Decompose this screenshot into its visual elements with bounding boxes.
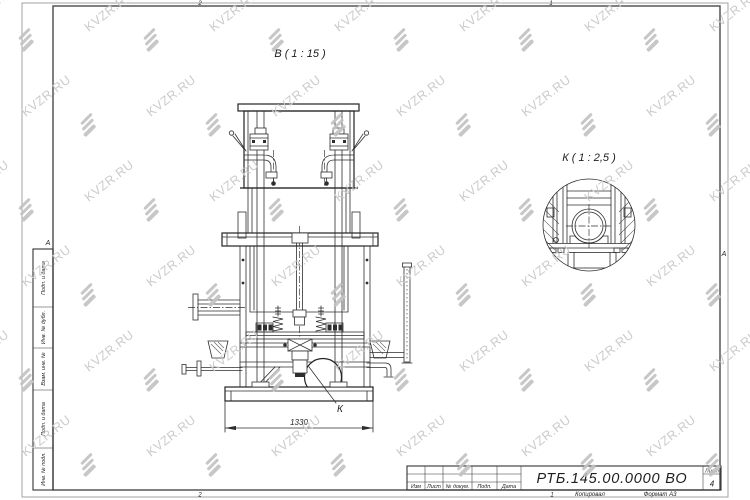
side-stamp-label: Взам. инв. № [41,352,47,386]
machine-drawing: К 1330 [182,104,412,432]
title-block: Изм Лист № докум. Подп. Дата РТБ.145.00.… [407,466,721,498]
main-view-label: В ( 1 : 15 ) [274,48,326,60]
zone-number-top-right: 1 [549,1,552,7]
side-stamp-label: Инв. № подл. [41,452,47,485]
sheet-number: 4 [710,480,715,489]
side-stamp-label: Подп. и дата [41,261,47,295]
side-stamp-label: Подп. и дата [41,402,47,436]
side-stamp-label: Инв. № дубл. [41,311,47,344]
drawing-sheet: 2 1 2 1 А А Подп. и дата Инв. № дубл. Вз… [0,0,750,500]
fold-mark-left: А [45,240,51,247]
title-col-izm: Изм [411,484,421,490]
side-rod [182,361,242,376]
zone-number-bottom-left: 2 [197,493,202,499]
title-col-list: Лист [426,484,441,490]
machine-lid [238,104,359,111]
dimension-1330: 1330 [225,402,373,432]
inlet-pipes [244,150,354,186]
outlet-pipe [367,363,393,377]
level-gauge [370,263,412,363]
dimension-text: 1330 [290,418,308,427]
detail-ref-label: К [337,404,344,415]
main-view: В ( 1 : 15 ) [182,48,412,432]
drawing-svg: 2 1 2 1 А А Подп. и дата Инв. № дубл. Вз… [0,0,750,500]
side-stamp: Подп. и дата Инв. № дубл. Взам. инв. № П… [33,249,53,490]
fold-mark-right: А [721,251,727,258]
detail-content [542,182,636,268]
zone-number-bottom-right: 1 [550,493,553,499]
flange-pipe [188,294,246,320]
format-label: Формат А3 [644,492,677,498]
detail-view: К ( 1 : 2,5 ) [542,152,636,271]
title-col-docnum: № докум. [446,484,470,490]
designation-text: РТБ.145.00.0000 ВО [537,471,688,487]
title-col-podp: Подп. [477,484,491,490]
machine-base [225,387,373,401]
title-col-data: Дата [501,484,516,490]
zone-number-top-left: 2 [197,1,202,7]
sheet-label: Лист [704,469,719,475]
detail-view-label: К ( 1 : 2,5 ) [562,152,616,164]
copied-label: Копировал [575,492,605,498]
column-clamps [229,128,368,151]
